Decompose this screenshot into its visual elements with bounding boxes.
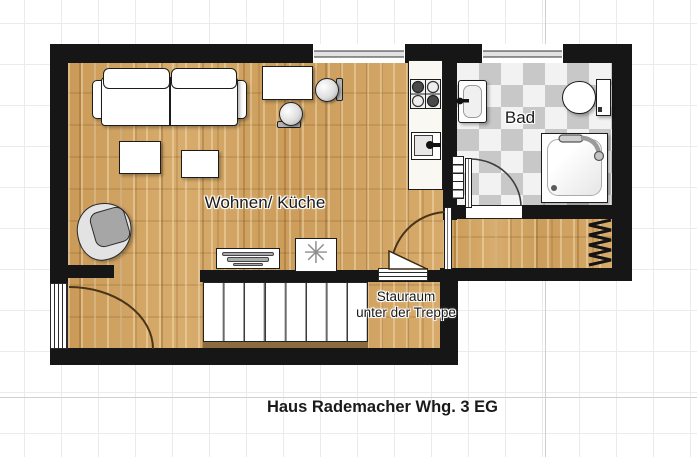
room-label-storage: Stauraum unter der Treppe [350, 289, 462, 321]
shower-drain-icon [551, 185, 557, 191]
stove-burner-4 [428, 96, 439, 107]
shower-rail-icon [559, 135, 583, 142]
stove-burner-1 [413, 82, 424, 93]
stove-burner-2 [428, 82, 439, 93]
plan-caption: Haus Rademacher Whg. 3 EG [255, 398, 510, 417]
floor-plan-canvas: ✳ Wohnen/ Küche Bad Stauraum unte [0, 0, 697, 457]
storage-door-wedge [389, 251, 427, 269]
shower-head-icon [595, 152, 604, 161]
bath-door-arc [471, 159, 521, 206]
radiator-zigzag-icon [589, 220, 611, 265]
kitchen-faucet-knob [426, 141, 434, 149]
plan-overlay [0, 0, 697, 457]
stove-burner-3 [413, 96, 424, 107]
room-label-living-kitchen: Wohnen/ Küche [179, 193, 351, 213]
room-label-storage-line2: unter der Treppe [350, 305, 462, 321]
room-label-storage-line1: Stauraum [350, 289, 462, 305]
room-label-bathroom: Bad [496, 108, 544, 128]
bath-sink-faucet-knob [457, 98, 464, 105]
entry-door-arc [69, 287, 153, 349]
